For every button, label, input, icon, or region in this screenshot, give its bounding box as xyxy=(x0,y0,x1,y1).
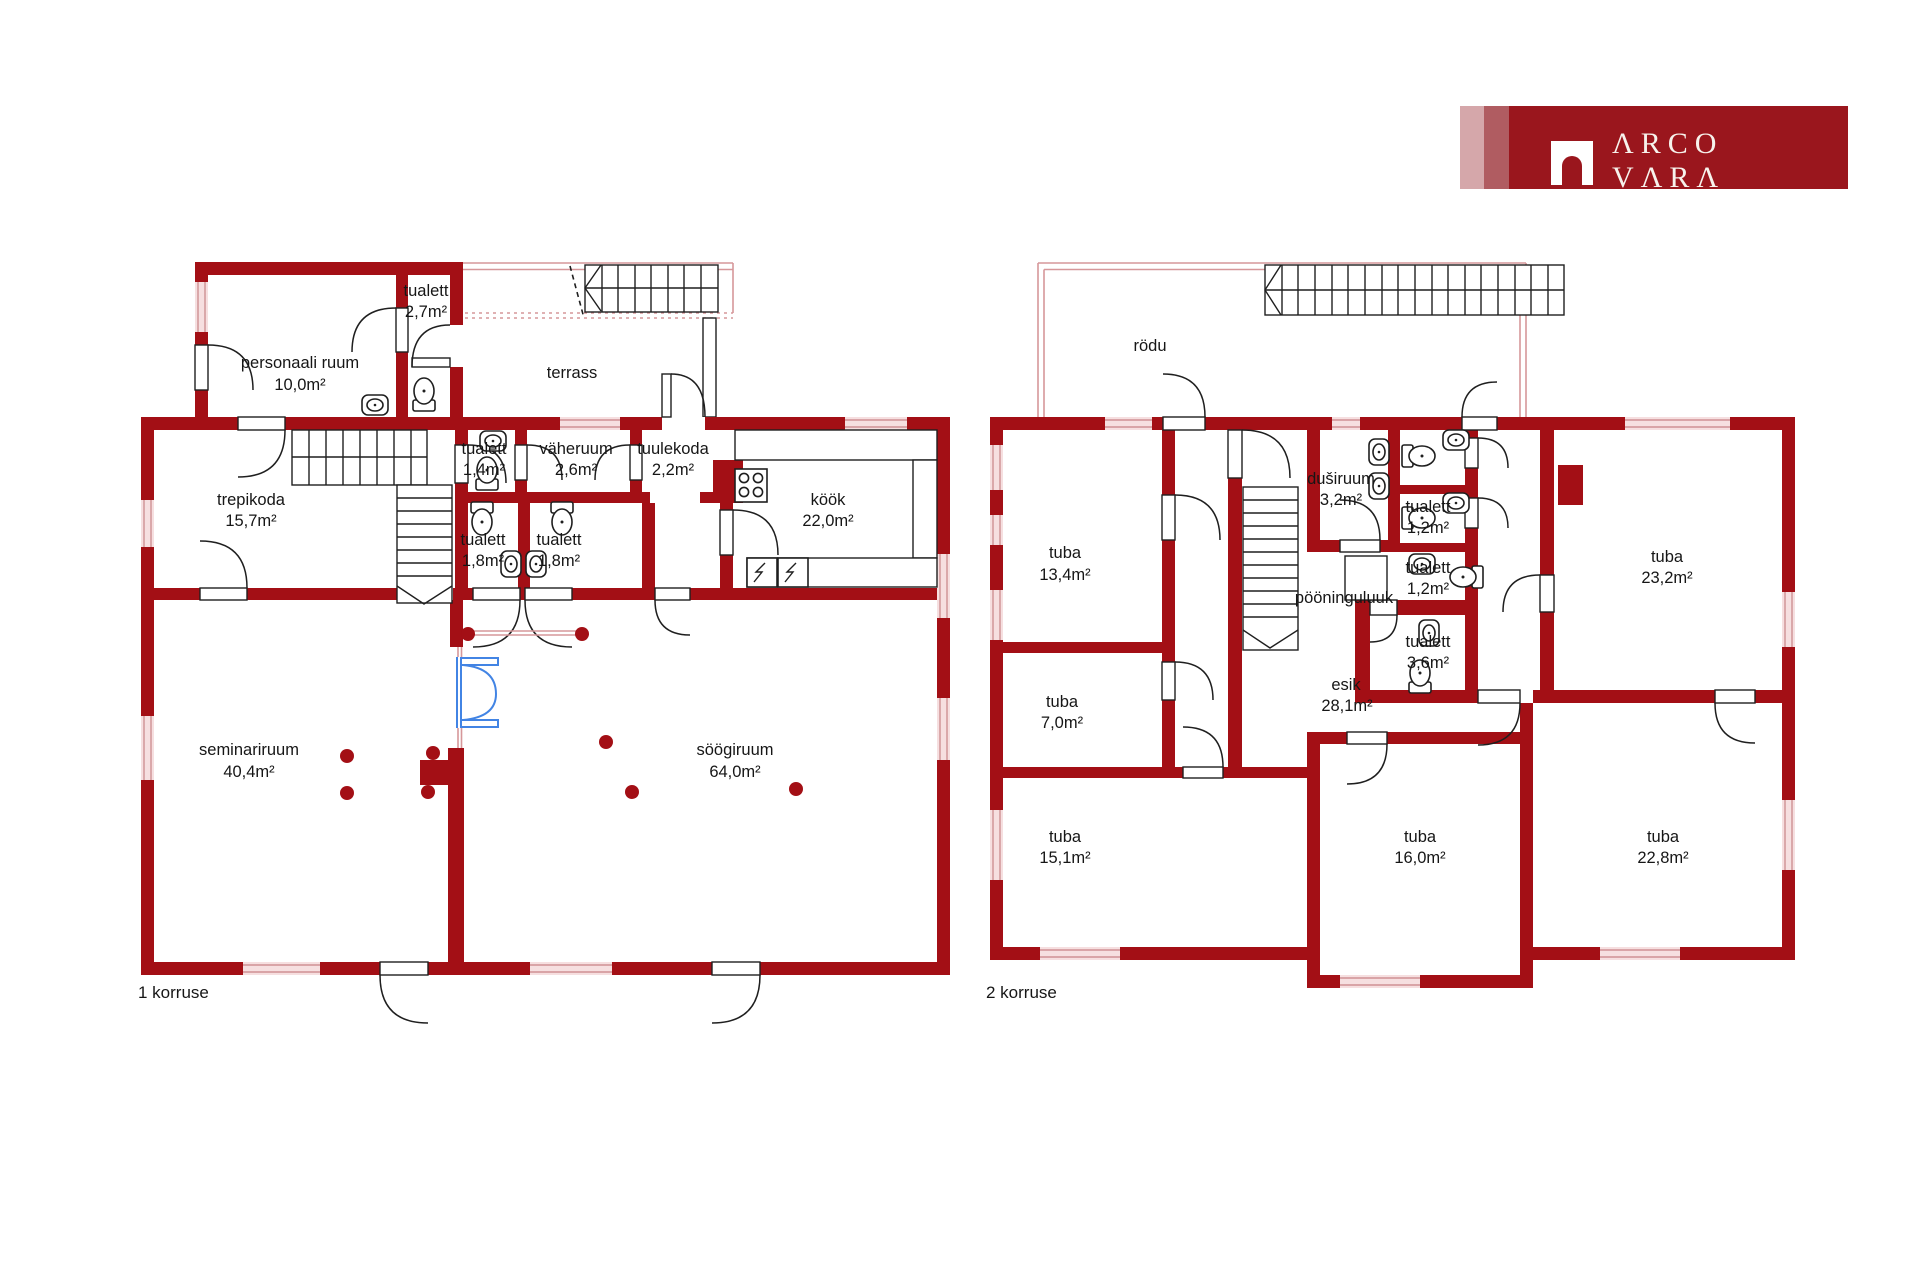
room-area: 2,2m² xyxy=(652,461,695,479)
room-area: 2,6m² xyxy=(555,461,598,479)
room-label: tuba xyxy=(1647,828,1680,846)
terrace-outline xyxy=(463,263,733,417)
room-label: köök xyxy=(811,491,847,509)
room-area: 64,0m² xyxy=(709,763,761,781)
room-label: tualett xyxy=(1406,498,1451,516)
room-area: 15,1m² xyxy=(1039,849,1091,867)
floor1-plan: tualett 2,7m² personaali ruum 10,0m² ter… xyxy=(138,262,950,1023)
room-area: 1,2m² xyxy=(1407,580,1450,598)
room-label: terrass xyxy=(547,364,597,382)
appliance-icon xyxy=(778,558,808,587)
floor2-staircase xyxy=(1243,487,1298,650)
room-label: seminariruum xyxy=(199,741,299,759)
room-area: 3,6m² xyxy=(1407,654,1450,672)
room-label: tualett xyxy=(1406,559,1451,577)
sink-icon xyxy=(362,395,388,415)
floor1-labels: tualett 2,7m² personaali ruum 10,0m² ter… xyxy=(138,282,854,1002)
room-label: tualett xyxy=(462,440,507,458)
room-label: rödu xyxy=(1133,337,1166,355)
room-label: esik xyxy=(1331,676,1361,694)
kitchen-counter xyxy=(913,460,937,558)
toilet-icon xyxy=(1450,566,1483,588)
floor2-plan: rödu tuba 13,4m² duširuum 3,2m² tualett … xyxy=(986,263,1795,1002)
room-label: trepikoda xyxy=(217,491,286,509)
room-area: 22,0m² xyxy=(802,512,854,530)
room-area: 1,8m² xyxy=(538,552,581,570)
room-label: tualett xyxy=(461,531,506,549)
room-label: tuba xyxy=(1404,828,1437,846)
floor-plan-sheet: ΛRCO VΛRΛ xyxy=(0,0,1920,1280)
room-label: tuba xyxy=(1049,828,1082,846)
floor1-caption: 1 korruse xyxy=(138,983,209,1002)
room-label: tualett xyxy=(404,282,449,300)
floor1-staircase xyxy=(292,430,452,604)
toilet-icon xyxy=(413,378,435,411)
floor2-walls xyxy=(990,417,1795,988)
room-label: pööninguluuk xyxy=(1295,589,1394,607)
room-area: 40,4m² xyxy=(223,763,275,781)
room-label: tualett xyxy=(537,531,582,549)
kitchen-counter xyxy=(735,430,937,460)
room-area: 22,8m² xyxy=(1637,849,1689,867)
balcony-outline xyxy=(1038,263,1564,417)
room-label: söögiruum xyxy=(696,741,773,759)
stove-icon xyxy=(735,469,767,502)
floor2-labels: rödu tuba 13,4m² duširuum 3,2m² tualett … xyxy=(986,337,1693,1002)
floor2-caption: 2 korruse xyxy=(986,983,1057,1002)
room-area: 7,0m² xyxy=(1041,714,1084,732)
plans-canvas: tualett 2,7m² personaali ruum 10,0m² ter… xyxy=(0,0,1920,1280)
room-area: 15,7m² xyxy=(225,512,277,530)
sink-icon xyxy=(1443,430,1469,450)
blue-double-door-icon xyxy=(457,657,498,728)
floor1-openings xyxy=(195,308,760,975)
room-area: 2,7m² xyxy=(405,303,448,321)
room-label: duširuum xyxy=(1307,470,1375,488)
room-area: 1,4m² xyxy=(463,461,506,479)
terrace-post xyxy=(703,318,716,417)
room-area: 3,2m² xyxy=(1320,491,1363,509)
room-area: 13,4m² xyxy=(1039,566,1091,584)
room-label: väheruum xyxy=(539,440,612,458)
room-area: 28,1m² xyxy=(1321,697,1373,715)
room-label: tuba xyxy=(1046,693,1079,711)
room-area: 1,2m² xyxy=(1407,519,1450,537)
appliance-icon xyxy=(747,558,777,587)
room-area: 1,8m² xyxy=(462,552,505,570)
room-label: personaali ruum xyxy=(241,354,359,372)
chimney xyxy=(1558,465,1583,505)
room-area: 23,2m² xyxy=(1641,569,1693,587)
floor1-windows xyxy=(141,282,950,975)
room-area: 16,0m² xyxy=(1394,849,1446,867)
room-area: 10,0m² xyxy=(274,376,326,394)
room-label: tuulekoda xyxy=(637,440,709,458)
room-label: tuba xyxy=(1049,544,1082,562)
toilet-icon xyxy=(1402,445,1435,467)
shower-sink-icon xyxy=(1369,439,1389,465)
room-label: tuba xyxy=(1651,548,1684,566)
room-label: tualett xyxy=(1406,633,1451,651)
